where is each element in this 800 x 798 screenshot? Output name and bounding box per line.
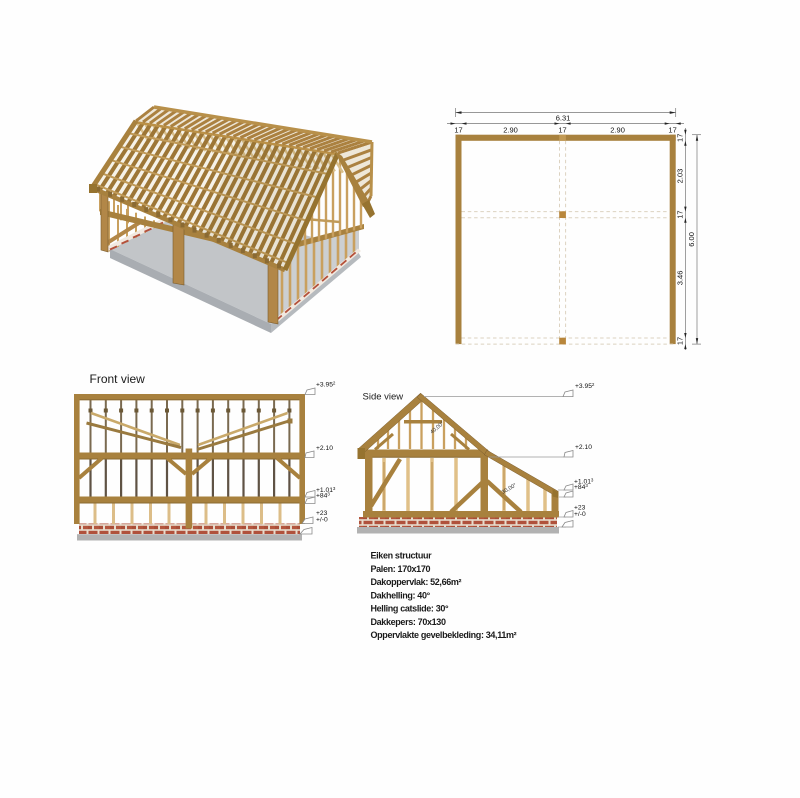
svg-text:2.03: 2.03 [676, 169, 685, 184]
svg-text:17: 17 [676, 210, 685, 218]
svg-text:+3.952: +3.952 [575, 382, 595, 390]
svg-text:17: 17 [454, 126, 462, 135]
svg-text:Oppervlakte gevelbekleding: 34: Oppervlakte gevelbekleding: 34,11m² [371, 630, 517, 640]
svg-text:17: 17 [676, 337, 685, 345]
svg-text:2.90: 2.90 [503, 126, 518, 135]
svg-text:Dakhelling: 40°: Dakhelling: 40° [371, 590, 431, 600]
svg-text:Helling catslide: 30°: Helling catslide: 30° [371, 604, 450, 614]
svg-text:2.90: 2.90 [610, 126, 625, 135]
svg-text:Dakkepers: 70x130: Dakkepers: 70x130 [371, 617, 446, 627]
svg-text:6.00: 6.00 [687, 232, 696, 247]
svg-text:Palen: 170x170: Palen: 170x170 [371, 564, 431, 574]
svg-text:+/-0: +/-0 [574, 511, 586, 518]
svg-text:+3.952: +3.952 [316, 381, 336, 389]
svg-text:17: 17 [676, 134, 685, 142]
svg-text:+/-0: +/-0 [316, 517, 328, 524]
svg-text:Front view: Front view [90, 372, 146, 386]
svg-text:6.31: 6.31 [556, 114, 571, 123]
svg-text:17: 17 [558, 126, 566, 135]
svg-text:3.46: 3.46 [676, 271, 685, 286]
svg-text:17: 17 [668, 126, 676, 135]
svg-text:+843: +843 [574, 483, 588, 491]
svg-text:+843: +843 [316, 492, 330, 500]
svg-text:+2.10: +2.10 [316, 445, 333, 452]
svg-text:Dakoppervlak: 52,66m²: Dakoppervlak: 52,66m² [371, 577, 462, 587]
svg-text:Eiken structuur: Eiken structuur [371, 551, 433, 561]
svg-text:+2.10: +2.10 [575, 444, 592, 451]
svg-text:Side view: Side view [363, 392, 404, 403]
